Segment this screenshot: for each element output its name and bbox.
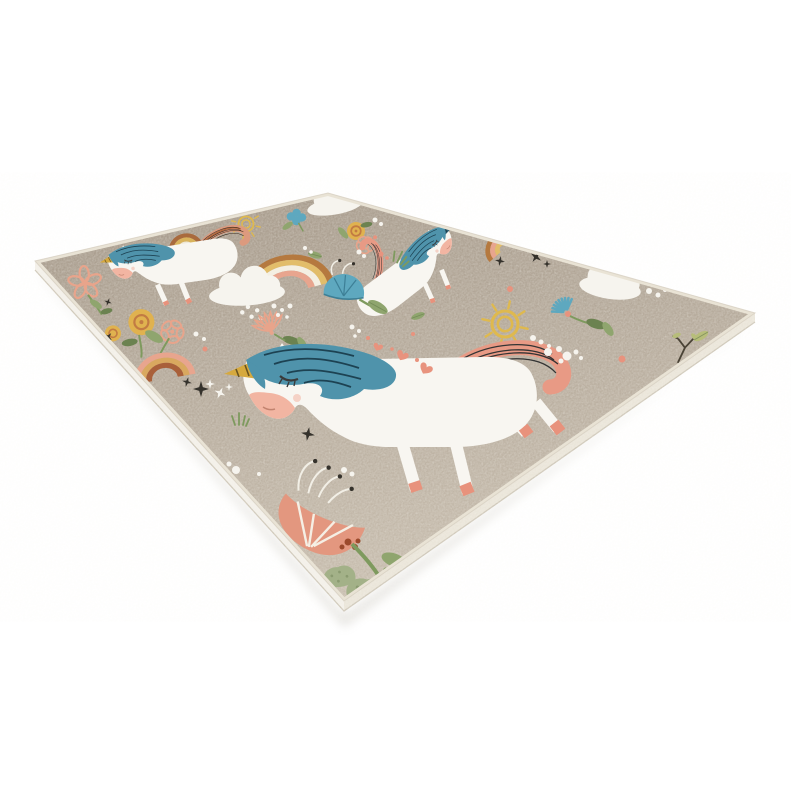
cloud-left-partial bbox=[129, 427, 180, 468]
rug-scene-canvas bbox=[0, 0, 800, 800]
product-photo-unicorn-rug bbox=[0, 0, 800, 800]
cloud-shape bbox=[129, 427, 180, 468]
